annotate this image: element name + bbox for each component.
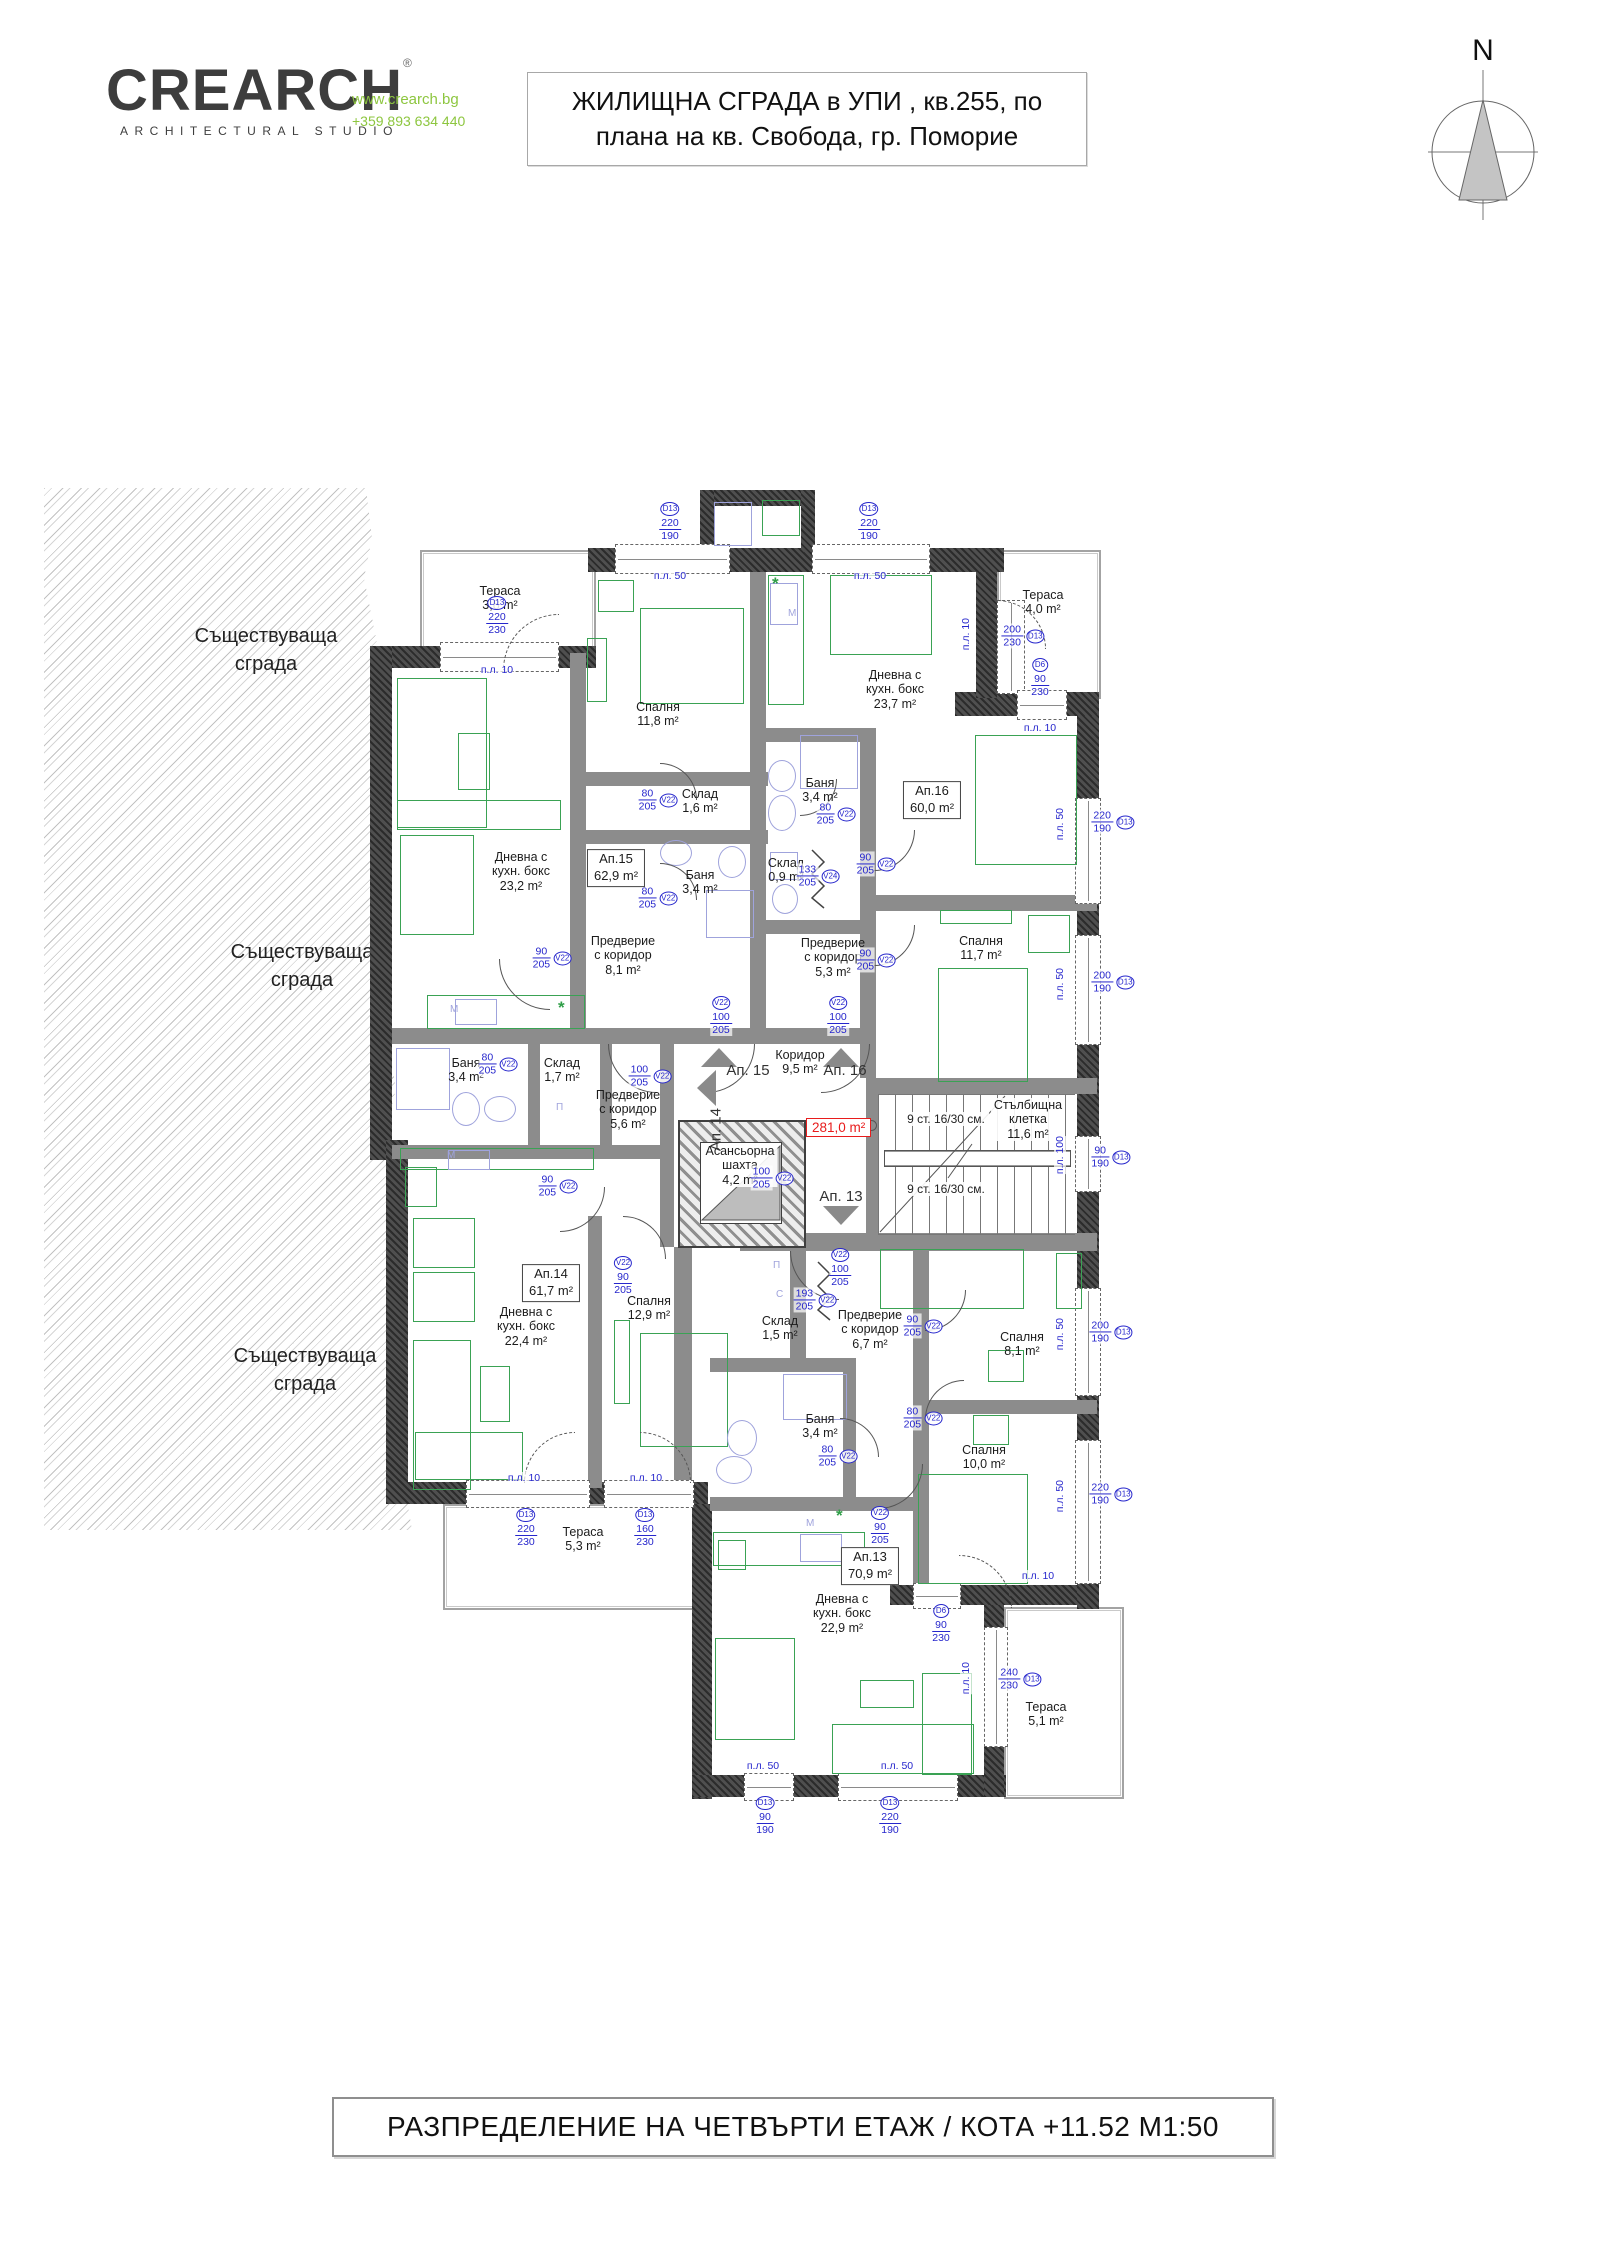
kitchen-mark: П <box>773 1260 780 1271</box>
furniture-outline <box>614 1320 630 1404</box>
dim-label: 200230D13 <box>1001 623 1044 648</box>
dim-label: 100205V22 <box>751 1165 794 1190</box>
fixture-outline <box>484 1096 516 1122</box>
room-label: Склад 1,5 m² <box>762 1314 798 1343</box>
furniture-outline <box>975 735 1077 865</box>
pl-label: п.л. 10 <box>960 1662 972 1694</box>
entry-label: Ап. 13 <box>819 1188 862 1205</box>
room-label: Тераса 4,0 m² <box>1023 588 1064 617</box>
furniture-outline <box>762 500 800 536</box>
furniture-outline <box>598 580 634 612</box>
kitchen-mark: M <box>450 1004 458 1015</box>
wall <box>588 1216 602 1488</box>
fixture-outline <box>768 760 796 792</box>
wall <box>570 653 586 1033</box>
page: CREARCH® ARCHITECTURAL STUDIO www.crearc… <box>0 0 1600 2265</box>
wall <box>710 1497 856 1511</box>
pl-label: п.л. 50 <box>1054 1318 1066 1350</box>
dim-label: 90190D13 <box>1091 1144 1130 1169</box>
dim-label: 200190D13 <box>1089 1319 1132 1344</box>
furniture-outline <box>973 1415 1009 1445</box>
wall <box>443 1504 699 1610</box>
pl-label: п.л. 50 <box>1054 968 1066 1000</box>
room-label: Дневна с кухн. бокс 22,9 m² <box>813 1592 871 1635</box>
stair-note: 9 ст. 16/30 см. <box>903 1112 989 1126</box>
wall <box>866 1094 878 1233</box>
kitchen-mark: * <box>558 998 565 1018</box>
wall <box>370 646 392 1160</box>
pl-label: п.л. 50 <box>1054 808 1066 840</box>
dim-label: 80205V22 <box>639 885 678 910</box>
fixture-outline <box>718 846 746 878</box>
fixture-outline <box>716 1456 752 1484</box>
dim-label: 80205V22 <box>479 1051 518 1076</box>
furniture-outline <box>940 910 1012 924</box>
room-label: Тераса 5,1 m² <box>1026 1700 1067 1729</box>
fixture-outline <box>768 795 796 831</box>
room-label: Спалня 12,9 m² <box>627 1294 671 1323</box>
stair-handrail <box>884 1150 1071 1167</box>
room-label: Предверие с коридор 6,7 m² <box>838 1308 902 1351</box>
dim-label: V22100205 <box>710 996 732 1036</box>
dim-label: 133205V24 <box>797 863 840 888</box>
furniture-outline <box>480 1366 510 1422</box>
wall <box>876 895 1097 911</box>
room-label: Стълбищна клетка 11,6 m² <box>991 1098 1065 1141</box>
pl-label: п.л. 50 <box>654 570 686 582</box>
dim-label: 100205V22 <box>629 1063 672 1088</box>
room-label: Предверие с коридор 8,1 m² <box>591 934 655 977</box>
furniture-outline <box>938 968 1028 1082</box>
pl-label: п.л. 10 <box>481 664 513 676</box>
dim-label: 90205V22 <box>533 945 572 970</box>
kitchen-mark: С <box>776 1289 783 1300</box>
dim-label: 220190D13 <box>1089 1481 1132 1506</box>
dim-label: 240230D13 <box>998 1666 1041 1691</box>
dim-label: D13220230 <box>486 596 508 636</box>
dim-label: D13220190 <box>879 1796 901 1836</box>
furniture-outline <box>640 608 744 704</box>
apartment-label: Ап.13 70,9 m² <box>841 1547 899 1585</box>
kitchen-mark: M <box>806 1518 814 1529</box>
room-label: Коридор 9,5 m² <box>775 1048 824 1077</box>
wall <box>750 572 766 1032</box>
dim-label: 90205V22 <box>857 947 896 972</box>
fixture-outline <box>660 840 692 866</box>
dim-label: 90205V22 <box>904 1313 943 1338</box>
furniture-outline <box>405 1167 437 1207</box>
entry-label: Ап. 14 <box>708 1108 725 1151</box>
apartment-label: Ап.16 60,0 m² <box>903 781 961 819</box>
furniture-outline <box>413 1218 475 1268</box>
dim-label: D1390190 <box>756 1796 775 1836</box>
dim-label: D690230 <box>1031 658 1049 698</box>
room-label: Спалня 8,1 m² <box>1000 1330 1044 1359</box>
dim-label: 90205V22 <box>539 1173 578 1198</box>
fixture-outline <box>727 1420 757 1456</box>
pl-label: п.л. 50 <box>881 1760 913 1772</box>
entry-arrow <box>823 1206 859 1225</box>
pl-label: п.л. 50 <box>1054 1480 1066 1512</box>
pl-label: п.л. 10 <box>960 618 972 650</box>
furniture-outline <box>400 835 474 935</box>
dim-label: 80205V22 <box>904 1405 943 1430</box>
entry-label: Ап. 16 <box>823 1062 866 1079</box>
furniture-outline <box>640 1333 728 1447</box>
wall <box>710 1358 856 1372</box>
dim-label: D690230 <box>932 1604 950 1644</box>
apartment-label: Ап.14 61,7 m² <box>522 1264 580 1302</box>
wall <box>392 1028 876 1044</box>
room-label: Баня 3,4 m² <box>802 776 837 805</box>
entry-arrow <box>697 1070 716 1106</box>
room-label: Дневна с кухн. бокс 22,4 m² <box>497 1305 555 1348</box>
furniture-outline <box>718 1540 746 1570</box>
stair-note: 9 ст. 16/30 см. <box>903 1182 989 1196</box>
pl-label: п.л. 10 <box>1022 1570 1054 1582</box>
room-label: Спалня 11,7 m² <box>959 934 1003 963</box>
dim-label: 193205V22 <box>794 1287 837 1312</box>
fixture-outline <box>396 1048 450 1110</box>
fixture-outline <box>455 999 497 1025</box>
dim-label: 80205V22 <box>817 801 856 826</box>
wall <box>860 728 876 1078</box>
window-band <box>1075 1440 1101 1584</box>
dim-label: 80205V22 <box>639 787 678 812</box>
furniture-outline <box>860 1680 914 1708</box>
room-label: Тераса 5,3 m² <box>563 1525 604 1554</box>
fixture-outline <box>714 502 752 546</box>
fixture-outline <box>452 1092 480 1126</box>
dim-label: D13220230 <box>515 1508 537 1548</box>
pl-label: п.л. 50 <box>747 1760 779 1772</box>
dim-label: V2290205 <box>614 1256 632 1296</box>
pl-label: п.л. 10 <box>1024 722 1056 734</box>
pl-label: п.л. 50 <box>854 570 886 582</box>
room-label: Спалня 10,0 m² <box>962 1443 1006 1472</box>
dim-label: D13220190 <box>858 502 880 542</box>
room-label: Дневна с кухн. бокс 23,7 m² <box>866 668 924 711</box>
pl-label: п.л. 10 <box>508 1472 540 1484</box>
wall <box>528 1044 540 1145</box>
furniture-outline <box>587 638 607 702</box>
wall <box>976 572 997 698</box>
dim-label: 80205V22 <box>819 1443 858 1468</box>
room-label: Склад 1,7 m² <box>544 1056 580 1085</box>
wall <box>801 490 815 552</box>
room-label: Дневна с кухн. бокс 23,2 m² <box>492 850 550 893</box>
furniture-outline <box>1028 915 1070 953</box>
sheet-title: РАЗПРЕДЕЛЕНИЕ НА ЧЕТВЪРТИ ЕТАЖ / КОТА +1… <box>387 2111 1219 2143</box>
apartment-label: Ап.15 62,9 m² <box>587 849 645 887</box>
room-label: Баня 3,4 m² <box>682 868 717 897</box>
kitchen-mark: M <box>447 1150 455 1161</box>
furniture-outline <box>413 1272 475 1322</box>
dim-label: 200190D13 <box>1091 969 1134 994</box>
wall <box>692 1504 712 1799</box>
room-label: Склад 1,6 m² <box>682 787 718 816</box>
dim-label: V22100205 <box>829 1248 851 1288</box>
room-label: Спалня 11,8 m² <box>636 700 680 729</box>
furniture-outline <box>1056 1253 1082 1309</box>
pl-label: п.л. 10 <box>630 1472 662 1484</box>
dim-label: 220190D13 <box>1091 809 1134 834</box>
fixture-outline <box>706 890 754 938</box>
dim-label: D13160230 <box>634 1508 656 1548</box>
dim-label: D13220190 <box>659 502 681 542</box>
window-band <box>466 1480 590 1508</box>
dim-label: V2290205 <box>871 1506 889 1546</box>
total-area-label: 281,0 m² <box>806 1118 871 1137</box>
furniture-outline <box>458 733 490 790</box>
kitchen-mark: * <box>772 574 779 594</box>
room-label: Баня 3,4 m² <box>802 1412 837 1441</box>
entry-label: Ап. 15 <box>726 1062 769 1079</box>
dim-label: V22100205 <box>827 996 849 1036</box>
furniture-outline <box>415 1432 523 1480</box>
window-band <box>604 1480 694 1508</box>
room-label: Предверие с коридор 5,6 m² <box>596 1088 660 1131</box>
dim-label: 90205V22 <box>857 851 896 876</box>
sheet-title-box: РАЗПРЕДЕЛЕНИЕ НА ЧЕТВЪРТИ ЕТАЖ / КОТА +1… <box>332 2097 1274 2157</box>
kitchen-mark: * <box>836 1506 843 1526</box>
pl-label: п.л. 100 <box>1054 1136 1066 1174</box>
furniture-outline <box>830 575 932 655</box>
furniture-outline <box>715 1638 795 1740</box>
wall <box>700 490 714 552</box>
fixture-outline <box>800 1534 842 1562</box>
room-label: Предверие с коридор 5,3 m² <box>801 936 865 979</box>
fixture-outline <box>772 884 798 914</box>
furniture-outline <box>397 800 561 830</box>
kitchen-mark: M <box>788 608 796 619</box>
kitchen-mark: П <box>556 1102 563 1113</box>
